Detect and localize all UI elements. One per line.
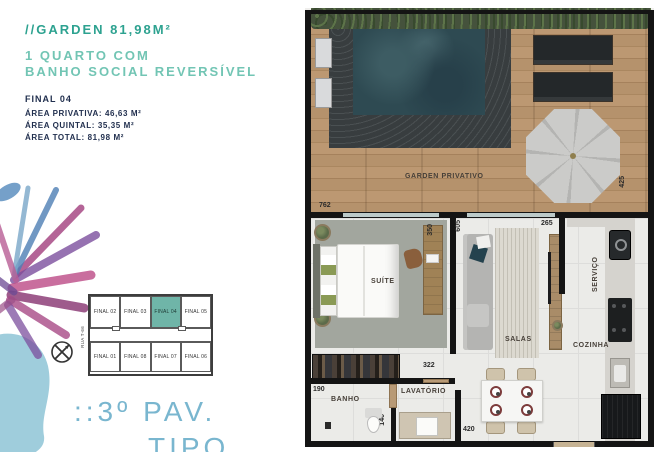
area-quintal: ÁREA QUINTAL: 35,35 M²: [25, 120, 141, 132]
keyplan-cell-final-04-highlighted: FINAL 04: [151, 296, 181, 328]
lavatorio-vanity: [399, 412, 451, 439]
wall-lavatorio-right: [455, 390, 461, 442]
place-setting: [490, 404, 502, 416]
page-title: //GARDEN 81,98M²: [25, 22, 172, 37]
keyplan-cell-final-06: FINAL 06: [181, 342, 211, 372]
tv-screen: [548, 252, 551, 304]
place-setting: [521, 404, 533, 416]
floor-plan: GARDEN PRIVATIVO 762 425 SUÍTE 350 322 6…: [305, 8, 654, 447]
dim-entry-width: 420: [463, 426, 475, 433]
plant: [314, 224, 331, 241]
pool-lounger: [315, 38, 332, 68]
dim-suite-width: 322: [423, 362, 435, 369]
suite-desk: [423, 225, 443, 315]
bed-duvet-fold: [363, 246, 365, 316]
unit-number: FINAL 04: [25, 94, 141, 104]
dim-sala-width: 265: [541, 220, 553, 227]
wall-bottom: [305, 441, 654, 447]
dim-suite-desk: 350: [427, 224, 434, 236]
cooktop-burner: [612, 328, 616, 332]
keyplan-notch: [178, 326, 186, 331]
wall-garden-right: [648, 10, 654, 218]
garden-label: GARDEN PRIVATIVO: [405, 173, 484, 180]
bed-headboard: [313, 244, 320, 318]
fridge: [601, 394, 641, 439]
unit-info: FINAL 04 ÁREA PRIVATIVA: 46,63 M² ÁREA Q…: [25, 94, 141, 144]
keyplan-diagram: RUA T-66 FINAL 02 FINAL 03 FINAL 04 FINA…: [88, 294, 213, 376]
kitchen-sink: [610, 358, 630, 388]
cozinha-label: COZINHA: [573, 342, 609, 349]
keyplan-cell-final-03: FINAL 03: [120, 296, 150, 328]
area-total: ÁREA TOTAL: 81,98 M²: [25, 132, 141, 144]
pool-lounger: [315, 78, 332, 108]
toilet: [365, 408, 382, 418]
wall-sala-servico: [559, 212, 565, 294]
dim-garden-depth: 425: [619, 176, 626, 188]
floor-number-label: ::3º PAV.: [74, 396, 216, 428]
keyplan-cell-final-01: FINAL 01: [90, 342, 120, 372]
keyplan-bottom-row: FINAL 01 FINAL 08 FINAL 07 FINAL 06: [90, 342, 211, 372]
sofa-cushion: [476, 235, 491, 249]
keyplan-cell-final-08: FINAL 08: [120, 342, 150, 372]
wall-garden-top: [305, 10, 654, 14]
shower-drain: [325, 422, 331, 429]
dim-banho-width: 190: [313, 386, 325, 393]
sala-sliding-door: [467, 213, 555, 217]
subtitle-line2: BANHO SOCIAL REVERSÍVEL: [25, 64, 257, 80]
desk-paper: [426, 254, 439, 263]
banho-label: BANHO: [331, 396, 360, 403]
suite-window: [343, 213, 439, 217]
cooktop-burner: [612, 304, 616, 308]
sun-lounger: [533, 35, 613, 65]
area-privativa: ÁREA PRIVATIVA: 46,63 M²: [25, 108, 141, 120]
brochure-page: //GARDEN 81,98M² 1 QUARTO COM BANHO SOCI…: [0, 0, 660, 452]
entry-door: [553, 442, 595, 447]
banho-door: [389, 384, 397, 408]
keyplan-street-label: RUA T-66: [80, 326, 85, 348]
floor-type-label: TIPO: [148, 432, 229, 452]
dining-chair: [486, 421, 505, 434]
lavatorio-label: LAVATÓRIO: [401, 388, 446, 395]
suite-label: SUÍTE: [371, 278, 395, 285]
keyplan-cell-final-02: FINAL 02: [90, 296, 120, 328]
umbrella-center: [570, 153, 576, 159]
subtitle-line1: 1 QUARTO COM: [25, 48, 257, 64]
keyplan-cell-final-07: FINAL 07: [151, 342, 181, 372]
salas-label: SALAS: [505, 336, 532, 343]
keyplan-corridor: [90, 328, 211, 342]
servico-label: SERVIÇO: [592, 244, 599, 292]
dim-sala-height: 605: [455, 220, 462, 232]
cooktop: [608, 298, 632, 342]
wall-suite-sala: [450, 212, 456, 354]
cooktop-burner: [622, 304, 626, 308]
wall-interior-left: [305, 212, 311, 447]
keyplan-top-row: FINAL 02 FINAL 03 FINAL 04 FINAL 05: [90, 296, 211, 328]
wall-interior-right: [648, 212, 654, 447]
pool: [353, 29, 485, 115]
place-setting: [521, 386, 533, 398]
dining-table: [481, 380, 543, 422]
bed-pillows: [320, 246, 337, 316]
suite-door: [423, 379, 449, 383]
washer-door: [615, 239, 627, 251]
keyplan-notch: [112, 326, 120, 331]
keyplan-cell-final-05: FINAL 05: [181, 296, 211, 328]
washing-machine: [609, 230, 631, 260]
cooktop-burner: [622, 328, 626, 332]
place-setting: [490, 386, 502, 398]
plant: [552, 320, 563, 331]
compass-icon: [50, 340, 74, 364]
dim-garden-width: 762: [319, 202, 331, 209]
sun-lounger: [533, 72, 613, 102]
wall-garden-left: [305, 10, 311, 218]
kitchen-sink-basin: [614, 365, 626, 382]
dining-chair: [517, 421, 536, 434]
footstool: [467, 304, 489, 327]
page-subtitle: 1 QUARTO COM BANHO SOCIAL REVERSÍVEL: [25, 48, 257, 80]
sink-basin: [416, 417, 438, 436]
wall-banho-lavatorio: [391, 406, 396, 442]
